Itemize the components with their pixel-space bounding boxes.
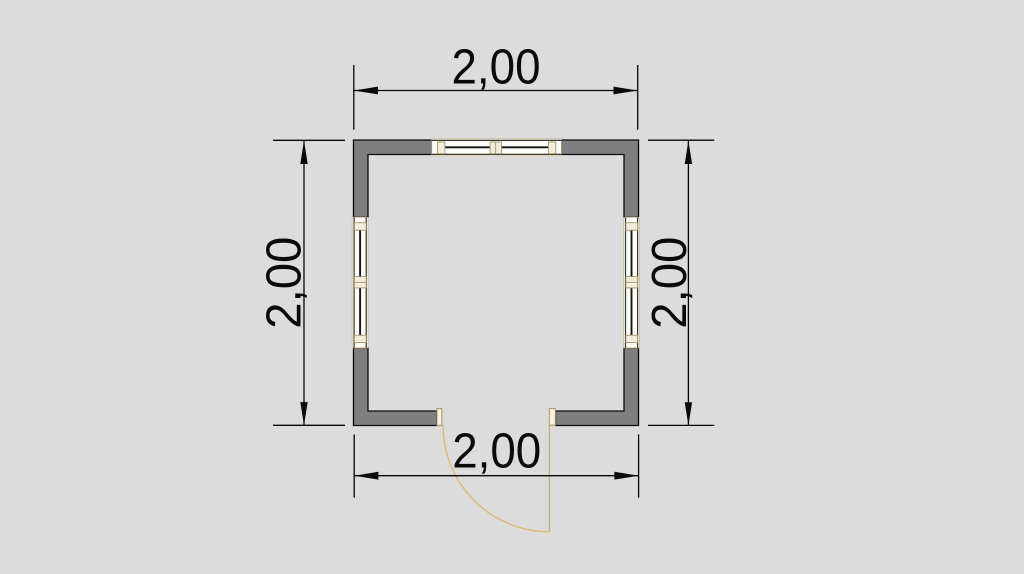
svg-text:2,00: 2,00 — [642, 237, 697, 329]
svg-text:2,00: 2,00 — [452, 39, 541, 94]
svg-text:2,00: 2,00 — [256, 237, 311, 329]
svg-text:2,00: 2,00 — [452, 423, 541, 478]
